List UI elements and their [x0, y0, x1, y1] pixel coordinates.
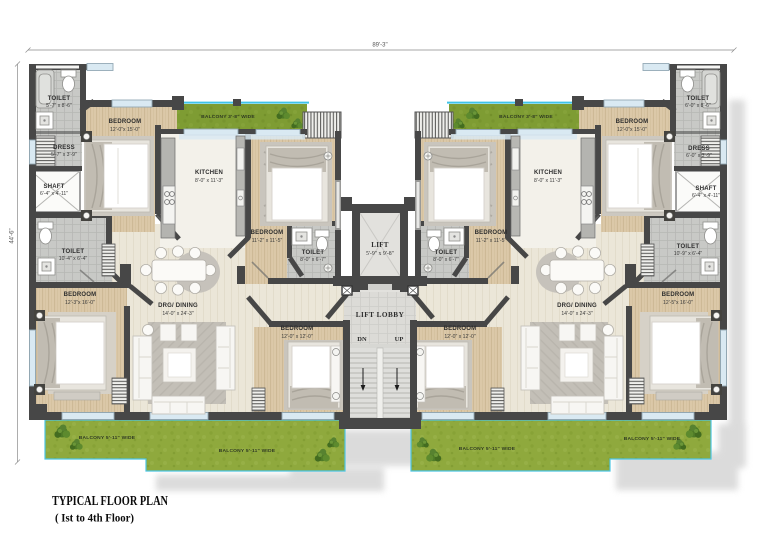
svg-text:TOILET: TOILET	[48, 96, 71, 102]
svg-text:BALCONY 5'-11" WIDE: BALCONY 5'-11" WIDE	[624, 436, 681, 442]
svg-text:TOILET: TOILET	[435, 250, 458, 256]
svg-text:5'-7" x 3'-9": 5'-7" x 3'-9"	[51, 152, 77, 158]
svg-text:8'-0" x 6'-7": 8'-0" x 6'-7"	[300, 257, 326, 263]
svg-text:10'-9" x 6'-4": 10'-9" x 6'-4"	[674, 251, 703, 257]
svg-text:TOILET: TOILET	[687, 96, 710, 102]
svg-text:BEDROOM: BEDROOM	[281, 326, 314, 332]
svg-text:DRESS: DRESS	[688, 146, 710, 152]
svg-text:( Ist to 4th Floor): ( Ist to 4th Floor)	[55, 511, 134, 525]
svg-text:11'-2" x 11'-5": 11'-2" x 11'-5"	[476, 238, 507, 244]
svg-text:14'-0" x 24'-3": 14'-0" x 24'-3"	[162, 311, 194, 317]
svg-text:5'-7" x 8'-6": 5'-7" x 8'-6"	[46, 103, 72, 109]
svg-text:BALCONY 3'-8" WIDE: BALCONY 3'-8" WIDE	[201, 114, 255, 120]
svg-text:8'-0" x 11'-3": 8'-0" x 11'-3"	[195, 178, 223, 184]
svg-text:KITCHEN: KITCHEN	[534, 170, 562, 176]
svg-text:DRG/ DINING: DRG/ DINING	[557, 303, 597, 309]
svg-text:12'-0" x 12'-0": 12'-0" x 12'-0"	[281, 334, 313, 340]
svg-text:SHAFT: SHAFT	[696, 186, 717, 192]
svg-text:BALCONY 5'-11" WIDE: BALCONY 5'-11" WIDE	[459, 446, 516, 452]
svg-text:BALCONY 5'-11" WIDE: BALCONY 5'-11" WIDE	[219, 448, 276, 454]
svg-text:BEDROOM: BEDROOM	[662, 292, 695, 298]
svg-text:8'-0" x 11'-3": 8'-0" x 11'-3"	[534, 178, 562, 184]
svg-text:BEDROOM: BEDROOM	[475, 230, 508, 236]
svg-text:10'-4" x 6'-4": 10'-4" x 6'-4"	[59, 256, 88, 262]
svg-text:DRG/ DINING: DRG/ DINING	[158, 303, 198, 309]
svg-text:6'-0" x 3'-9": 6'-0" x 3'-9"	[686, 153, 712, 159]
svg-text:12'-3"x 16'-0": 12'-3"x 16'-0"	[65, 300, 95, 306]
svg-text:6'-0" x 8'-6": 6'-0" x 8'-6"	[685, 103, 711, 109]
svg-text:BEDROOM: BEDROOM	[251, 230, 284, 236]
svg-text:12'-0" x 12'-0": 12'-0" x 12'-0"	[444, 334, 476, 340]
svg-text:BEDROOM: BEDROOM	[444, 326, 477, 332]
svg-text:8'-0" x 6'-7": 8'-0" x 6'-7"	[433, 257, 459, 263]
svg-text:BALCONY 5'-11" WIDE: BALCONY 5'-11" WIDE	[79, 435, 136, 441]
svg-text:12'-0"x 15'-0": 12'-0"x 15'-0"	[110, 127, 140, 133]
svg-text:TOILET: TOILET	[62, 249, 85, 255]
svg-text:LIFT LOBBY: LIFT LOBBY	[356, 311, 405, 319]
svg-text:11'-2" x 11'-5": 11'-2" x 11'-5"	[252, 238, 283, 244]
svg-text:6'-4" x 4'-11": 6'-4" x 4'-11"	[692, 193, 720, 199]
svg-text:5'-9" x 9'-8": 5'-9" x 9'-8"	[366, 251, 394, 257]
svg-text:DRESS: DRESS	[53, 145, 75, 151]
svg-text:89'-3": 89'-3"	[372, 43, 387, 49]
svg-text:SHAFT: SHAFT	[44, 184, 65, 190]
svg-text:44'-6": 44'-6"	[10, 228, 16, 243]
svg-text:12'-0"x 15'-0": 12'-0"x 15'-0"	[617, 127, 647, 133]
svg-text:UP: UP	[395, 336, 404, 343]
svg-text:BEDROOM: BEDROOM	[109, 119, 142, 125]
svg-text:BEDROOM: BEDROOM	[64, 292, 97, 298]
svg-text:TOILET: TOILET	[677, 244, 700, 250]
svg-text:TOILET: TOILET	[302, 250, 325, 256]
svg-text:LIFT: LIFT	[371, 241, 389, 249]
svg-text:12'-5"x 16'-0": 12'-5"x 16'-0"	[663, 300, 693, 306]
svg-text:TYPICAL FLOOR PLAN: TYPICAL FLOOR PLAN	[52, 494, 168, 509]
svg-text:6'-4" x 4'-11": 6'-4" x 4'-11"	[40, 191, 68, 197]
svg-text:DN: DN	[357, 336, 367, 343]
svg-text:BALCONY 3'-8" WIDE: BALCONY 3'-8" WIDE	[499, 114, 553, 120]
svg-text:KITCHEN: KITCHEN	[195, 170, 223, 176]
svg-text:BEDROOM: BEDROOM	[616, 119, 649, 125]
svg-text:14'-0" x 24'-3": 14'-0" x 24'-3"	[561, 311, 593, 317]
